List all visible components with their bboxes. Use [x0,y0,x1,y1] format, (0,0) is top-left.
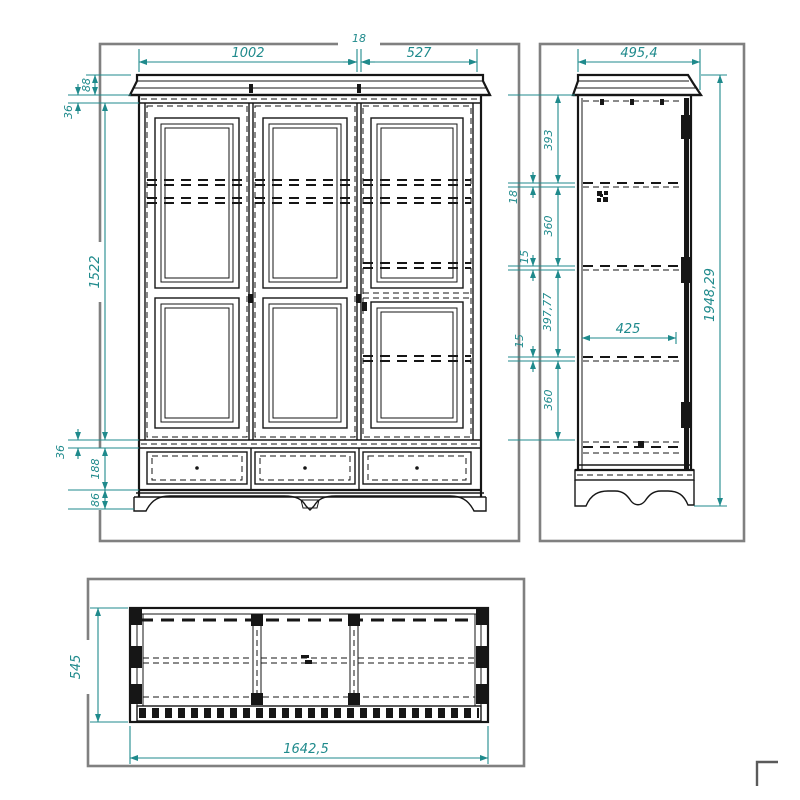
top-carcass [130,608,488,722]
dim-front-base-height: 86 [89,493,102,507]
dim-side-depth: 495,4 [620,46,657,61]
dim-top-width: 1642,5 [283,742,329,757]
dim-side-inner-depth: 425 [616,322,641,337]
dim-front-width-right: 527 [407,46,433,61]
top-partitions [251,614,360,705]
dim-side-gap2: 15 [513,334,526,348]
sheet-corner-mark [757,762,778,786]
dim-side-seg1: 393 [542,130,555,151]
top-hidden-lines [143,655,475,697]
drawing-sheet: 1002 527 18 88 36 1522 36 188 86 [0,0,800,800]
dim-top-depth: 545 [69,655,84,680]
front-cornice [130,75,490,103]
front-doors [145,103,473,440]
hinge [681,115,691,139]
dim-front-rail-height: 36 [54,445,67,459]
dim-front-gap: 18 [352,32,366,45]
dim-side-height: 1948,29 [703,268,718,322]
dim-side-seg3: 397,77 [541,293,554,332]
front-view: 1002 527 18 88 36 1522 36 188 86 [54,32,490,511]
dim-front-cornice-height: 88 [80,78,93,92]
hinge [681,257,691,283]
dim-side-seg4: 360 [542,390,555,411]
side-drawer-base [575,441,694,506]
dim-side-seg2: 360 [542,216,555,237]
dim-front-width-left: 1002 [231,46,264,61]
dim-side-shelf-thickness: 18 [507,190,520,204]
front-base-skirt [134,493,486,511]
side-cornice [573,75,701,95]
front-drawers [139,444,481,490]
dim-front-drawer-height: 188 [89,459,102,480]
dim-side-gap1: 15 [518,250,531,264]
top-view: 545 1642,5 [69,608,488,764]
hinge [681,402,691,428]
dim-front-door-height: 1522 [88,255,103,288]
top-front-band [137,706,481,721]
technical-drawing: 1002 527 18 88 36 1522 36 188 86 [0,0,800,800]
front-hidden-shelf-lines [147,180,471,361]
dim-front-frieze-height: 36 [62,105,75,119]
side-carcass [578,95,691,470]
